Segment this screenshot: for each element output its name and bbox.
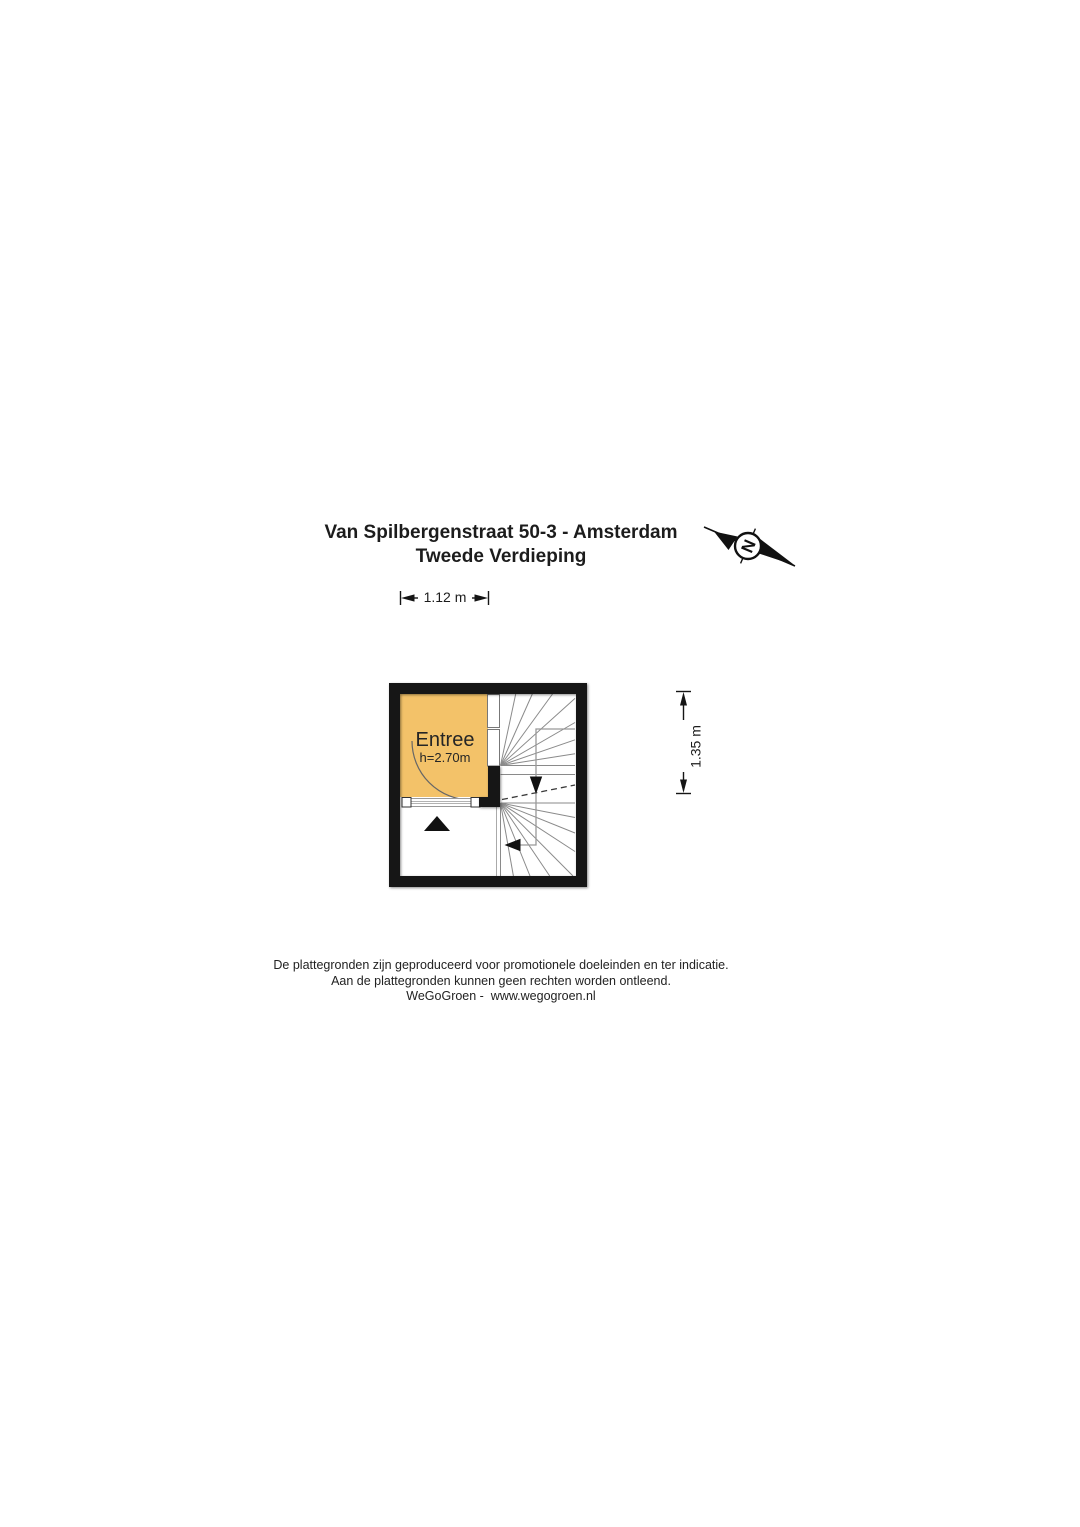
footer-line-3: WeGoGroen - www.wegogroen.nl <box>201 989 801 1005</box>
room-name-label: Entree <box>403 729 487 752</box>
wall-left <box>389 683 400 887</box>
floorplan-page: Van Spilbergenstraat 50-3 - Amsterdam Tw… <box>0 0 1080 1527</box>
entry-direction-triangle <box>424 816 450 831</box>
door-post-right <box>471 798 480 808</box>
wall-bottom <box>389 876 587 887</box>
width-dimension-label: 1.12 m <box>418 589 472 605</box>
footer-line-1: De plattegronden zijn geproduceerd voor … <box>201 958 801 974</box>
footer-line-2: Aan de plattegronden kunnen geen rechten… <box>201 974 801 990</box>
stairs-upper-fan <box>501 694 576 766</box>
walkline-down-arrow <box>530 777 542 795</box>
footer-disclaimer: De plattegronden zijn geproduceerd voor … <box>201 958 801 1005</box>
wall-top <box>389 683 587 694</box>
stairs-walk-line <box>505 729 576 851</box>
stairs-cut-dashed-line <box>502 785 575 800</box>
door-post-left <box>402 798 411 808</box>
divider-wall-open-segments <box>488 695 500 767</box>
floorplan-drawing <box>389 683 587 887</box>
compass-head-triangle <box>756 537 795 566</box>
floorplan-graphics: N <box>0 0 1080 1527</box>
stairs-lower-fan <box>501 803 576 876</box>
wall-below-entree <box>479 797 500 807</box>
wall-right <box>576 683 587 887</box>
door-threshold <box>402 798 480 808</box>
height-dimension-label: 1.35 m <box>688 718 705 776</box>
room-ceiling-height-label: h=2.70m <box>403 750 487 765</box>
north-compass-icon: N <box>704 527 795 566</box>
